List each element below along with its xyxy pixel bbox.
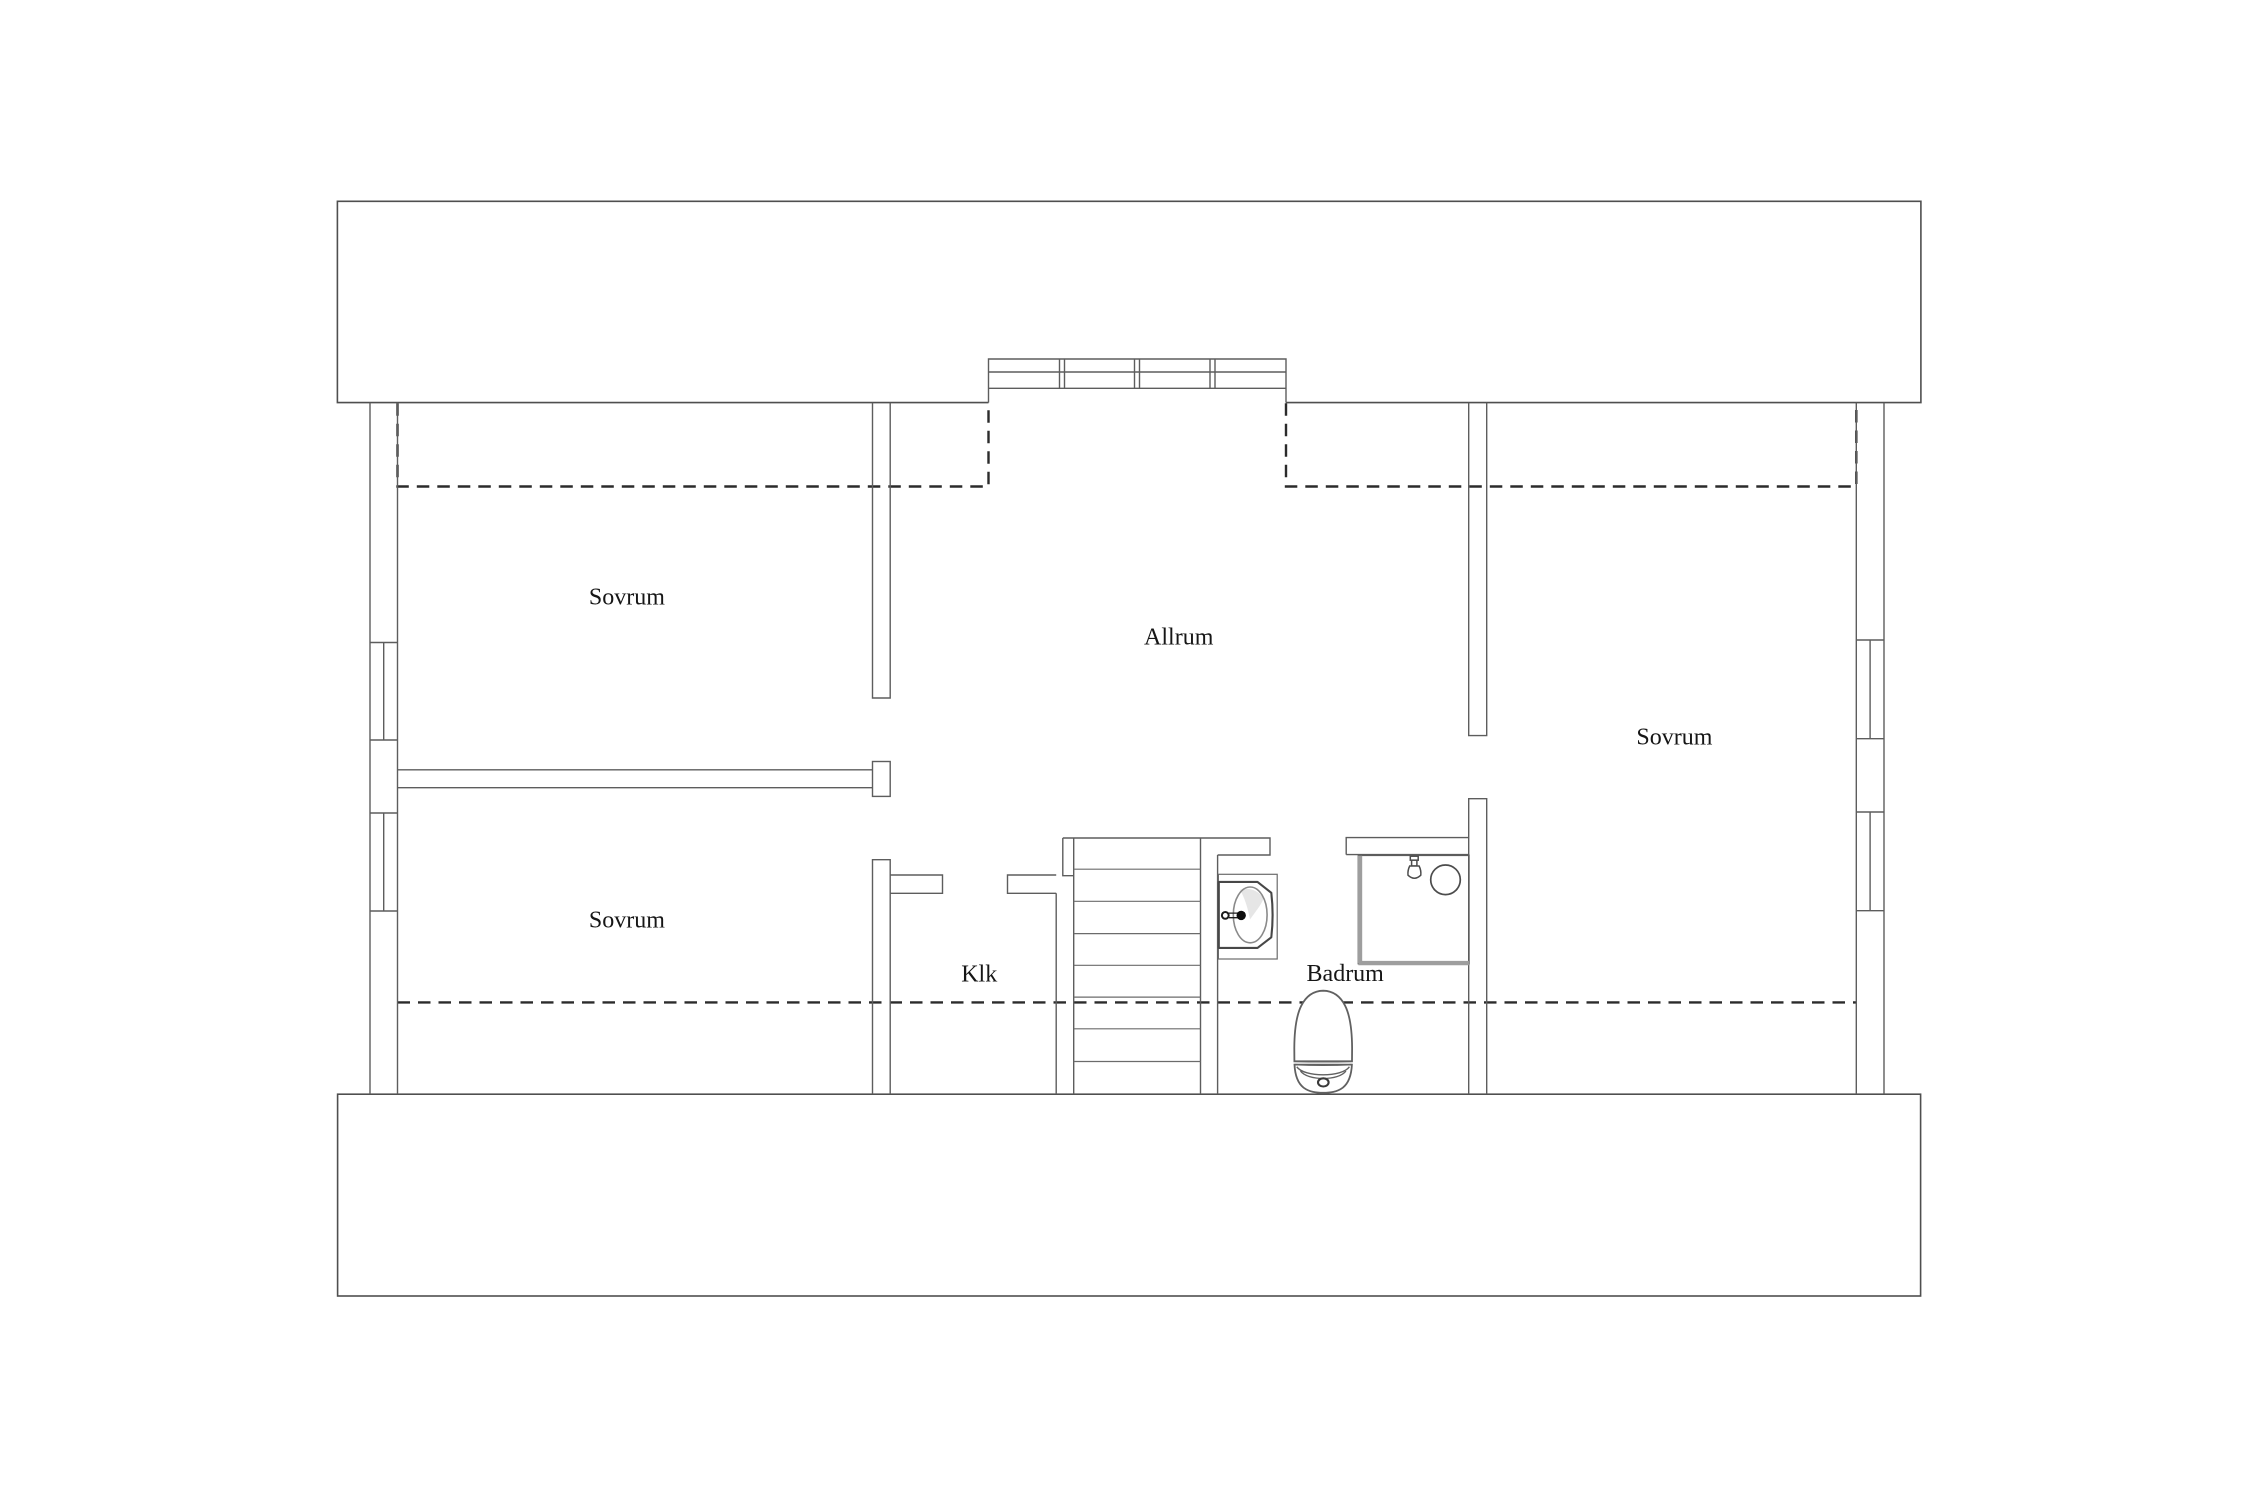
- svg-text:Allrum: Allrum: [1144, 624, 1214, 650]
- svg-text:Badrum: Badrum: [1307, 961, 1385, 987]
- svg-text:Sovrum: Sovrum: [1636, 724, 1712, 750]
- svg-text:Klk: Klk: [961, 962, 997, 988]
- svg-text:Sovrum: Sovrum: [589, 907, 665, 933]
- svg-text:Sovrum: Sovrum: [589, 585, 665, 611]
